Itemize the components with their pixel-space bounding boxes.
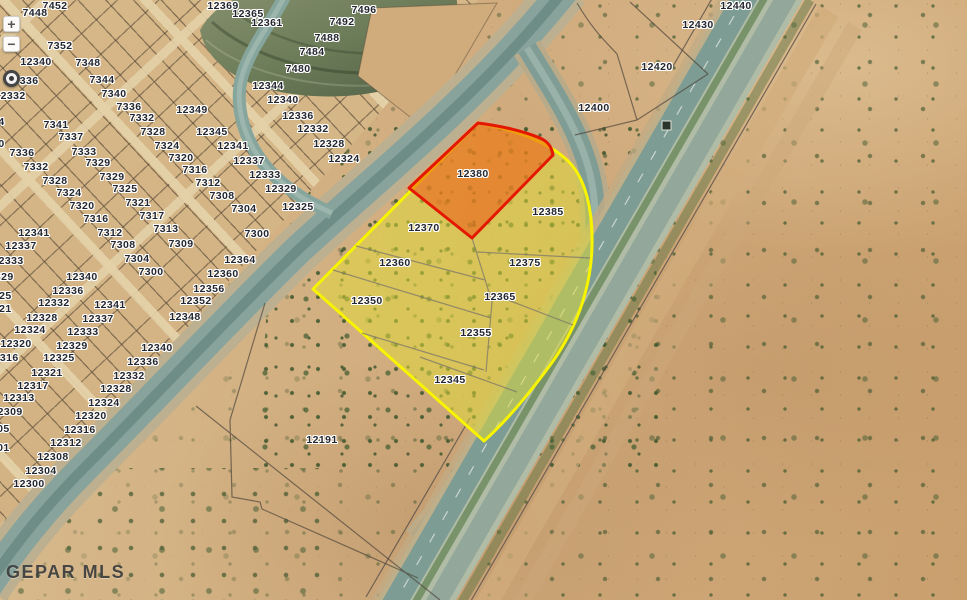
zoom-out-button[interactable]: − [3, 36, 20, 52]
parcel-number-label: 12320 [0, 338, 31, 350]
parcel-number-label: 12337 [5, 240, 36, 252]
parcel-number-label: 12301 [0, 442, 10, 454]
parcel-number-label: 12336 [52, 285, 83, 297]
parcel-number-label: 7329 [86, 157, 111, 169]
parcel-number-label: 12329 [0, 271, 14, 283]
parcel-number-label: 7332 [24, 161, 49, 173]
parcel-number-label: 12328 [313, 138, 344, 150]
parcel-number-label: 7488 [315, 32, 340, 44]
parcel-number-label: 12324 [328, 153, 359, 165]
parcel-number-label: 7316 [84, 213, 109, 225]
parcel-number-label: 7325 [113, 183, 138, 195]
parcel-number-label: 12400 [578, 102, 609, 114]
parcel-number-label: 12324 [88, 397, 119, 409]
parcel-number-label: 12312 [50, 437, 81, 449]
parcel-labels-layer: 7452744873521234073487344734073367332733… [0, 0, 967, 600]
parcel-number-label: 12325 [282, 201, 313, 213]
parcel-number-label: 12337 [82, 313, 113, 325]
parcel-number-label: 12340 [267, 94, 298, 106]
parcel-number-label: 12364 [224, 254, 255, 266]
parcel-number-label: 7320 [70, 200, 95, 212]
parcel-number-label: 12316 [0, 352, 19, 364]
parcel-number-label: 7328 [141, 126, 166, 138]
parcel-number-label: 12333 [67, 326, 98, 338]
parcel-number-label: 12321 [0, 303, 12, 315]
parcel-number-label: 12325 [0, 290, 12, 302]
parcel-number-label: 7496 [352, 4, 377, 16]
parcel-number-label: 12337 [233, 155, 264, 167]
parcel-number-label: 7332 [130, 112, 155, 124]
parcel-number-label: 12370 [408, 222, 439, 234]
parcel-number-label: 12345 [196, 126, 227, 138]
parcel-number-label: 7308 [210, 190, 235, 202]
parcel-number-label: 12321 [31, 367, 62, 379]
parcel-number-label: 12308 [37, 451, 68, 463]
parcel-number-label: 7337 [59, 131, 84, 143]
parcel-number-label: 12380 [457, 168, 488, 180]
parcel-number-label: 12191 [306, 434, 337, 446]
parcel-number-label: 12356 [193, 283, 224, 295]
satellite-parcel-map[interactable]: 7452744873521234073487344734073367332733… [0, 0, 967, 600]
parcel-number-label: 12341 [94, 299, 125, 311]
parcel-number-label: 12332 [113, 370, 144, 382]
parcel-number-label: 7312 [196, 177, 221, 189]
parcel-number-label: 7309 [169, 238, 194, 250]
parcel-number-label: 7324 [155, 140, 180, 152]
parcel-number-label: 12385 [532, 206, 563, 218]
parcel-number-label: 12349 [176, 104, 207, 116]
parcel-number-label: 12340 [66, 271, 97, 283]
parcel-number-label: 12340 [141, 342, 172, 354]
parcel-number-label: 7313 [154, 223, 179, 235]
parcel-number-label: 7304 [232, 203, 257, 215]
parcel-number-label: 12365 [484, 291, 515, 303]
parcel-number-label: 7329 [100, 171, 125, 183]
parcel-number-label: 7344 [90, 74, 115, 86]
parcel-number-label: 7320 [169, 152, 194, 164]
parcel-number-label: 12430 [682, 19, 713, 31]
parcel-number-label: 12440 [720, 0, 751, 12]
parcel-number-label: 12355 [460, 327, 491, 339]
parcel-number-label: 12350 [351, 295, 382, 307]
parcel-number-label: 7348 [76, 57, 101, 69]
parcel-number-label: 7352 [48, 40, 73, 52]
parcel-number-label: 12324 [0, 116, 5, 128]
parcel-number-label: 12328 [100, 383, 131, 395]
parcel-number-label: 12320 [0, 138, 5, 150]
parcel-number-label: 12345 [434, 374, 465, 386]
parcel-number-label: 12333 [249, 169, 280, 181]
parcel-number-label: 12332 [38, 297, 69, 309]
parcel-number-label: 12375 [509, 257, 540, 269]
parcel-number-label: 12361 [251, 17, 282, 29]
parcel-number-label: 7340 [102, 88, 127, 100]
parcel-number-label: 7484 [300, 46, 325, 58]
parcel-number-label: 12336 [127, 356, 158, 368]
parcel-number-label: 12316 [64, 424, 95, 436]
gepar-mls-watermark: GEPAR MLS [6, 562, 125, 583]
parcel-number-label: 12352 [180, 295, 211, 307]
parcel-number-label: 12313 [3, 392, 34, 404]
parcel-number-label: 7328 [43, 175, 68, 187]
parcel-number-label: 12329 [56, 340, 87, 352]
parcel-number-label: 12329 [265, 183, 296, 195]
parcel-number-label: 12332 [297, 123, 328, 135]
parcel-number-label: 12328 [26, 312, 57, 324]
parcel-number-label: 7308 [111, 239, 136, 251]
parcel-number-label: 7312 [98, 227, 123, 239]
parcel-number-label: 7300 [139, 266, 164, 278]
parcel-number-label: 7336 [10, 147, 35, 159]
parcel-number-label: 7448 [23, 7, 48, 19]
parcel-number-label: 12325 [43, 352, 74, 364]
parcel-number-label: 12360 [379, 257, 410, 269]
compass-dot [9, 76, 14, 81]
parcel-number-label: 12309 [0, 406, 23, 418]
parcel-number-label: 12320 [75, 410, 106, 422]
parcel-number-label: 7480 [286, 63, 311, 75]
parcel-number-label: 12305 [0, 423, 10, 435]
parcel-number-label: 7321 [126, 197, 151, 209]
parcel-number-label: 12317 [17, 380, 48, 392]
parcel-number-label: 12420 [641, 61, 672, 73]
compass-location-icon[interactable] [3, 70, 20, 87]
parcel-number-label: 7300 [245, 228, 270, 240]
parcel-number-label: 7324 [57, 187, 82, 199]
parcel-number-label: 12300 [13, 478, 44, 490]
parcel-number-label: 12336 [282, 110, 313, 122]
parcel-number-label: 7341 [44, 119, 69, 131]
parcel-number-label: 7316 [183, 164, 208, 176]
parcel-number-label: 7492 [330, 16, 355, 28]
zoom-in-button[interactable]: + [3, 16, 20, 32]
parcel-number-label: 12332 [0, 90, 26, 102]
parcel-number-label: 12341 [217, 140, 248, 152]
parcel-number-label: 12304 [25, 465, 56, 477]
parcel-number-label: 12324 [14, 324, 45, 336]
parcel-number-label: 12333 [0, 255, 24, 267]
parcel-number-label: 12341 [18, 227, 49, 239]
parcel-number-label: 7304 [125, 253, 150, 265]
parcel-number-label: 12348 [169, 311, 200, 323]
parcel-number-label: 7317 [140, 210, 165, 222]
parcel-number-label: 12344 [252, 80, 283, 92]
parcel-number-label: 12360 [207, 268, 238, 280]
parcel-number-label: 12340 [20, 56, 51, 68]
